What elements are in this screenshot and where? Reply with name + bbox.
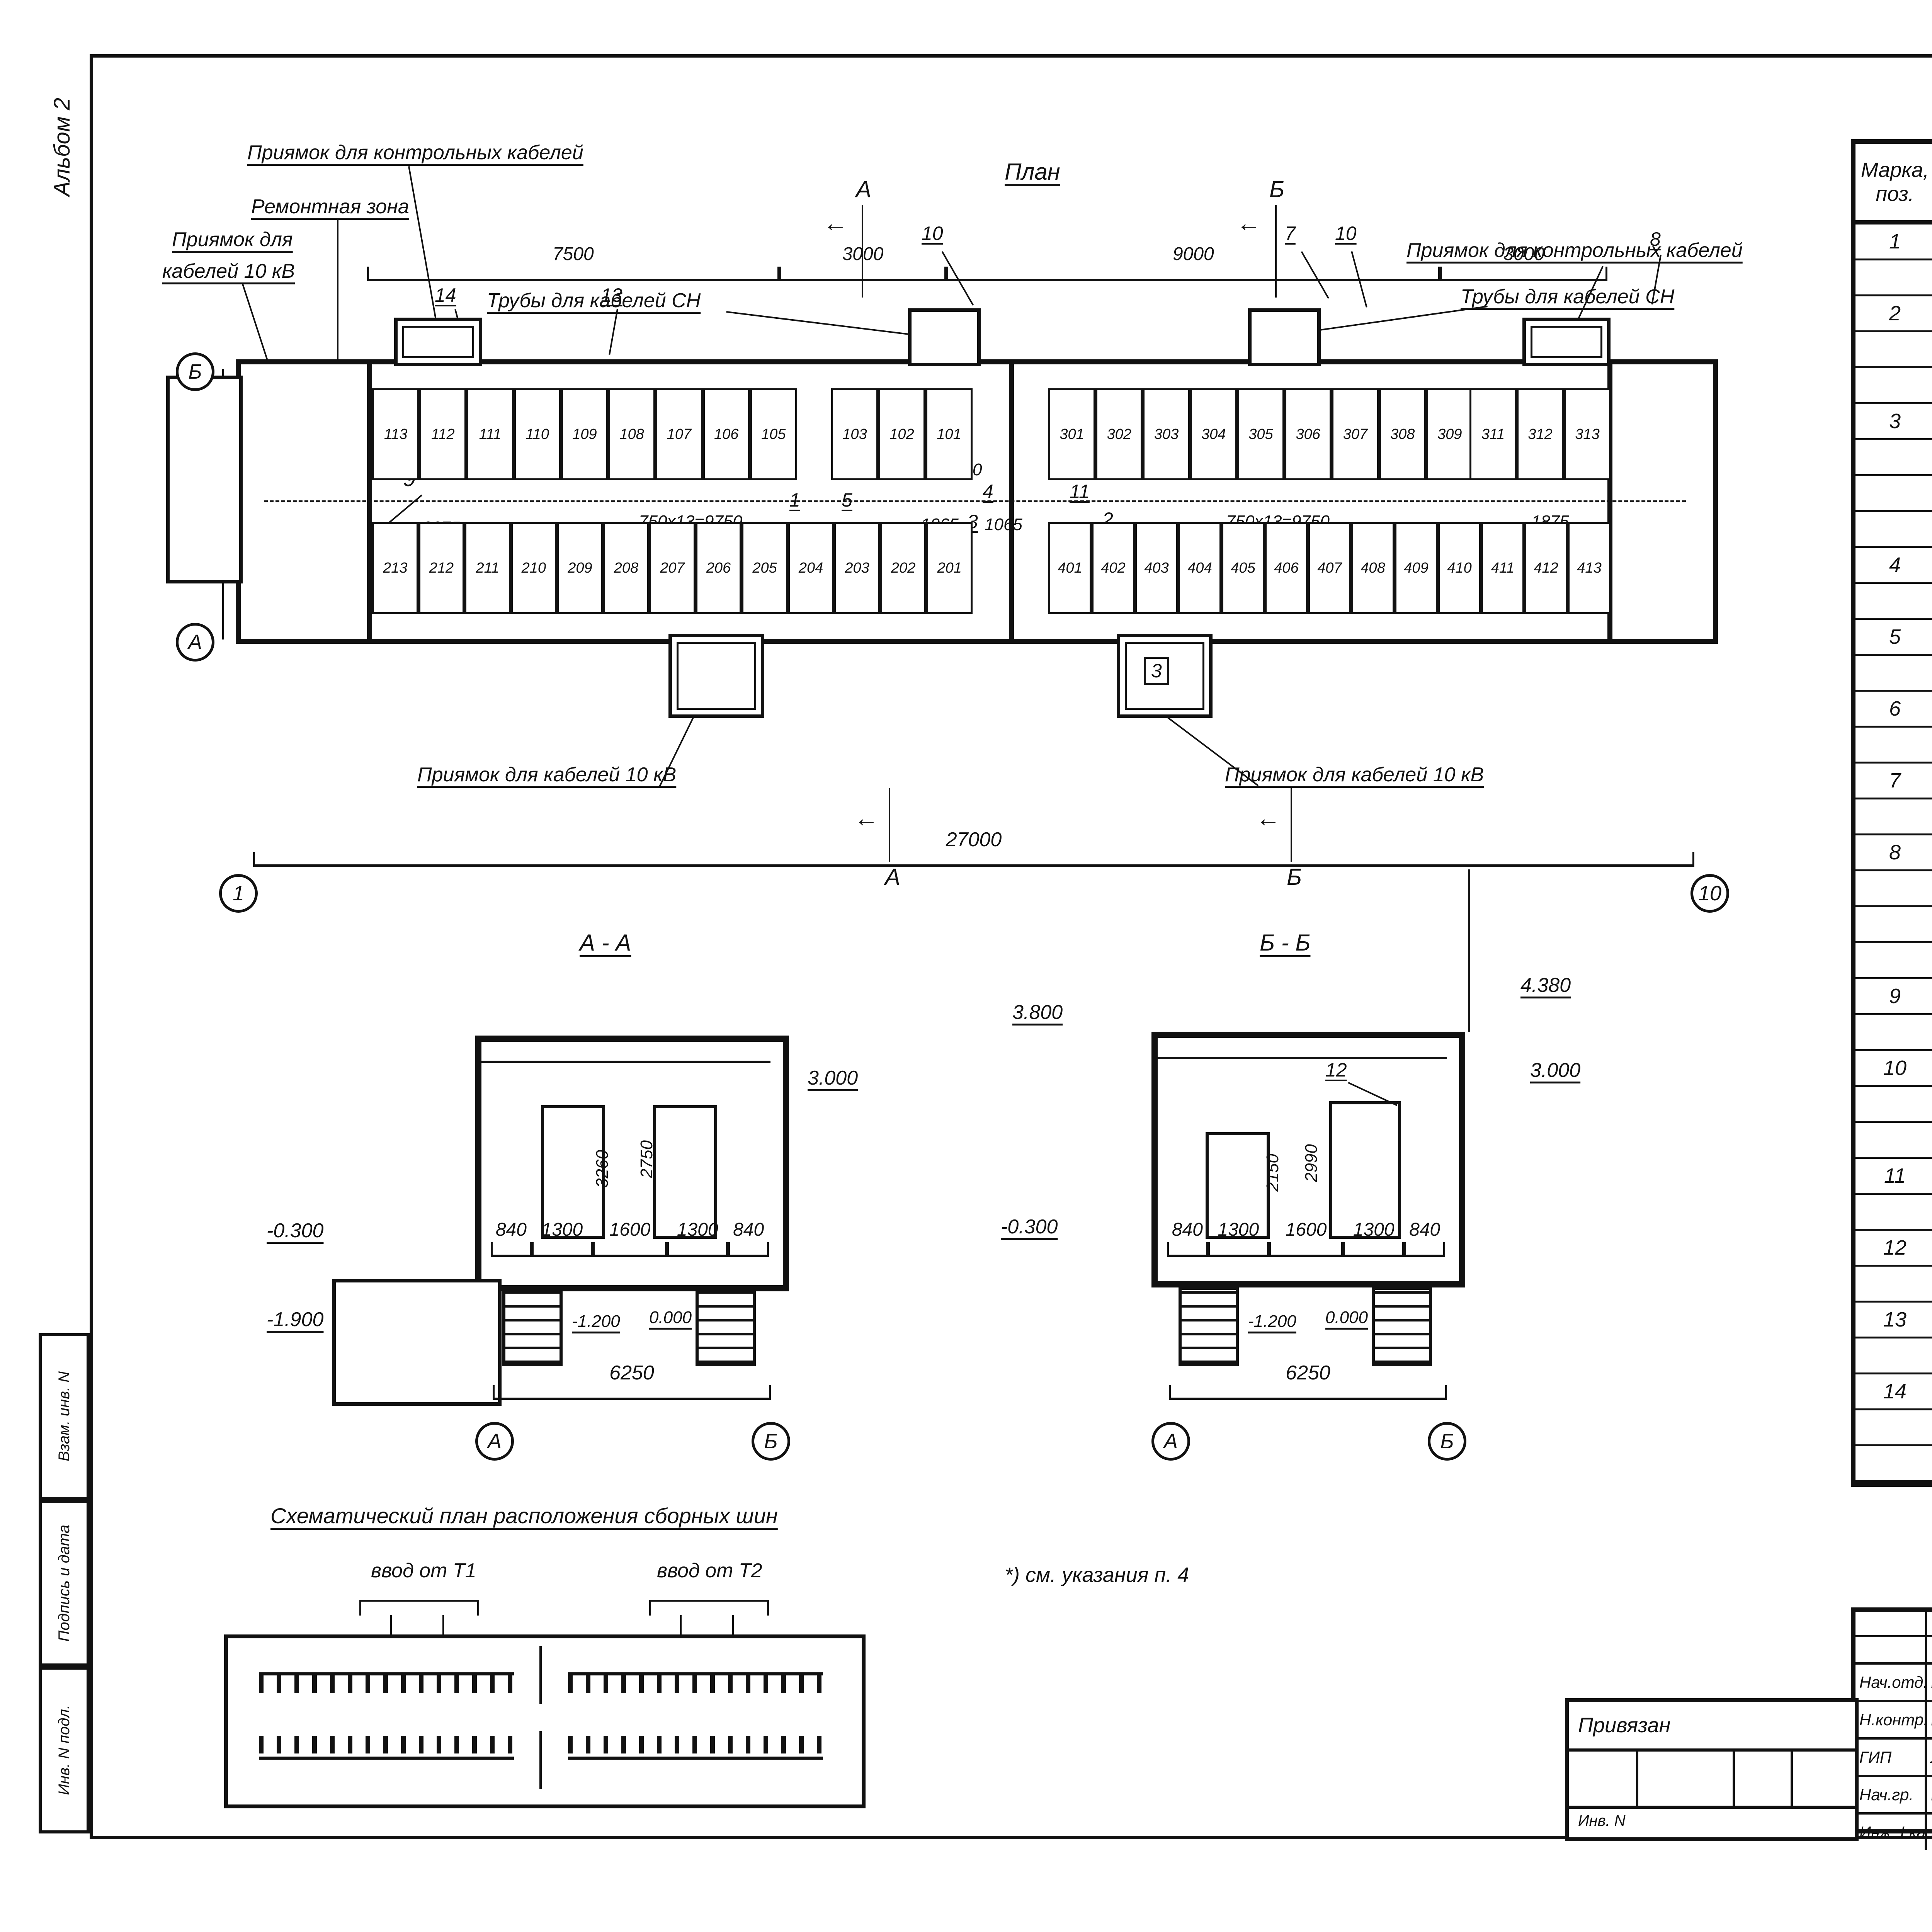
spec-cell-m: 11 bbox=[1855, 1159, 1932, 1195]
section-aa-level-0300: -0.300 bbox=[267, 1219, 323, 1242]
spec-row: связи с выключателем bbox=[1855, 332, 1932, 368]
pit-inner bbox=[402, 326, 474, 358]
section-aa-title: А - А bbox=[580, 929, 631, 956]
schematic-title: Схематический план расположения сборных … bbox=[270, 1503, 778, 1528]
busbar bbox=[259, 1672, 514, 1675]
spec-row: аппаратами8*302, 303, 402, 403 bbox=[1855, 584, 1932, 620]
dimension-label: 7500 bbox=[553, 243, 594, 265]
section-bb-title: Б - Б bbox=[1260, 929, 1310, 956]
spec-cell-m bbox=[1855, 476, 1932, 512]
grid-circle-10: 10 bbox=[1690, 874, 1729, 913]
dimension-segment: 1300 bbox=[667, 1242, 728, 1257]
callout-5: 5 bbox=[842, 489, 852, 511]
cabinet-cell: 307 bbox=[1332, 388, 1379, 480]
cell-row-top-right-a: 301302303304305306307308309 bbox=[1048, 388, 1473, 480]
busbar bbox=[568, 1672, 823, 1675]
cabinet-cell: 112 bbox=[419, 388, 466, 480]
cell-row-top-left-b: 103102101 bbox=[831, 388, 973, 480]
cabinet-cell: 101 bbox=[925, 388, 973, 480]
dimension-segment: 1600 bbox=[593, 1242, 667, 1257]
signature-cell: Карпов bbox=[1927, 1777, 1932, 1812]
cabinet-cell: 403 bbox=[1135, 522, 1178, 614]
album-label-text: Альбом 2 bbox=[49, 98, 75, 196]
label-pit-control-left: Приямок для контрольных кабелей bbox=[247, 141, 583, 164]
section-aa-grid-b: Б bbox=[752, 1422, 790, 1461]
dimension-segment: 3000 bbox=[779, 267, 947, 281]
pit-inner bbox=[677, 642, 756, 710]
dimension-segment: 1600 bbox=[1269, 1242, 1343, 1257]
spec-cell-m: 8 bbox=[1855, 835, 1932, 871]
margin-stamps: Взам. инв. NПодпись и датаИнв. N подл. bbox=[39, 1333, 90, 1833]
spec-cell-m bbox=[1855, 368, 1932, 404]
schematic-t1-label: ввод от Т1 bbox=[371, 1559, 476, 1582]
callout-8: 8 bbox=[1650, 228, 1661, 250]
signature-row: Инж. I катКарпова08.92 bbox=[1855, 1812, 1932, 1850]
section-split-line bbox=[539, 1731, 542, 1789]
plan-top-dims: 7500300090003000 bbox=[367, 267, 1607, 281]
plan-total-dim-label: 27000 bbox=[946, 828, 1002, 851]
cabinet-cell: 203 bbox=[834, 522, 880, 614]
spec-cell-m: 13 bbox=[1855, 1303, 1932, 1338]
spec-row: 3Шкаф КРУ-10 секционной bbox=[1855, 404, 1932, 440]
cabinet-cell: 313 bbox=[1564, 388, 1611, 480]
section-aa-level-0000: 0.000 bbox=[649, 1308, 692, 1327]
dimension-label: 1300 bbox=[677, 1219, 718, 1240]
spec-cell-m: 6 bbox=[1855, 692, 1932, 728]
grid-circle-b: Б bbox=[176, 352, 214, 391]
cabinet-cell: 205 bbox=[742, 522, 788, 614]
grid-circle-a: А bbox=[176, 623, 214, 662]
spec-cell-m bbox=[1855, 656, 1932, 692]
label-pipes-sn-left: Трубы для кабелей СН bbox=[487, 289, 701, 312]
spec-cell-m: 12 bbox=[1855, 1231, 1932, 1267]
section-aa-annex bbox=[332, 1279, 502, 1406]
signature-cell: ГИП bbox=[1855, 1740, 1927, 1775]
cabinet-cell: 202 bbox=[880, 522, 927, 614]
dimension-label: 840 bbox=[496, 1219, 527, 1240]
section-bb-level-0300: -0.300 bbox=[1001, 1215, 1058, 1238]
cabinet-cell: 213 bbox=[372, 522, 418, 614]
section-marker-line bbox=[1291, 788, 1292, 862]
spec-row: 5Шкаф КРУ-10 для питания bbox=[1855, 620, 1932, 656]
cabinet-cell: 402 bbox=[1092, 522, 1135, 614]
spec-body: 1Шкаф КРУ-10 ввода с вы-109, 204ключател… bbox=[1855, 224, 1932, 1482]
spec-row: 10ЭП2-10Доска проходная с bbox=[1855, 1051, 1932, 1087]
spec-title: Спецификация оборудования и материалов bbox=[1851, 86, 1932, 112]
spec-row: кабельных линий36* bbox=[1855, 728, 1932, 764]
cabinet-cell: 210 bbox=[511, 522, 557, 614]
dimension-label: 1300 bbox=[1218, 1219, 1259, 1240]
spec-row: 11ЭП2-11Шинный мост между bbox=[1855, 1159, 1932, 1195]
cabinet-cell: 102 bbox=[878, 388, 925, 480]
cell-row-top-left-a: 113112111110109108107106105 bbox=[372, 388, 797, 480]
section-marker-a-bottom: А bbox=[885, 864, 900, 890]
callout-7: 7 bbox=[1285, 222, 1296, 245]
privyazan-label: Привязан bbox=[1578, 1713, 1670, 1737]
signature-cell: Карпов bbox=[1927, 1702, 1932, 1737]
label-pit-control-right: Приямок для контрольных кабелей bbox=[1406, 239, 1743, 262]
cabinet-cell: 408 bbox=[1351, 522, 1395, 614]
section-bb-roof-line bbox=[1158, 1057, 1447, 1059]
spec-row: на ток 1600 А2201, 301 bbox=[1855, 368, 1932, 404]
section-arrow-b-bottom-icon: ← bbox=[1256, 804, 1281, 832]
cabinet-cell: 303 bbox=[1143, 388, 1190, 480]
dimension-segment: 840 bbox=[1404, 1242, 1445, 1257]
left-annex bbox=[166, 376, 243, 583]
spec-row: чательзоне bbox=[1855, 1410, 1932, 1446]
plan-title: План bbox=[1005, 158, 1060, 185]
spec-cell-m bbox=[1855, 512, 1932, 548]
cabinet-cell: 103 bbox=[831, 388, 878, 480]
spec-row: 7ШШВ 1Шкаф шинного ввода bbox=[1855, 764, 1932, 799]
cabinet-cell: 412 bbox=[1524, 522, 1568, 614]
cabinet-cell: 204 bbox=[788, 522, 834, 614]
spec-row: связи с разъединяющими bbox=[1855, 440, 1932, 476]
section-aa-roof-line bbox=[481, 1061, 770, 1063]
spec-table: Марка,поз.ОбозначениеНаименованиеКол.Мас… bbox=[1851, 139, 1932, 1487]
spec-row: изоляторами ИП □-□ bbox=[1855, 1087, 1932, 1123]
section-aa-dim-3260: 3260 bbox=[593, 1150, 612, 1188]
spec-cell-m bbox=[1855, 728, 1932, 764]
busbar-comb bbox=[568, 1675, 823, 1693]
busbar bbox=[568, 1757, 823, 1760]
cabinet-cell: 411 bbox=[1481, 522, 1524, 614]
cabinet-cell: 305 bbox=[1237, 388, 1284, 480]
spec-row: 2Шкаф КРУ-10 секционной bbox=[1855, 296, 1932, 332]
busbar-comb bbox=[259, 1736, 514, 1753]
callout-14: 14 bbox=[435, 284, 456, 306]
signature-cell: Карпова bbox=[1927, 1815, 1932, 1850]
schematic-t2-label: ввод от Т2 bbox=[657, 1559, 762, 1582]
section-bb-dim-2150: 2150 bbox=[1263, 1154, 1282, 1192]
spec-cell-m: 9 bbox=[1855, 979, 1932, 1015]
cabinet-cell: 304 bbox=[1190, 388, 1237, 480]
spec-row: трансформатра СН2107, 411 bbox=[1855, 656, 1932, 692]
spec-row: 12ЭП2-9Конструкция для крепле- bbox=[1855, 1231, 1932, 1267]
dim-1065b: 1065 bbox=[985, 515, 1022, 534]
cabinet-cell: 409 bbox=[1395, 522, 1438, 614]
spec-cell-m: 14 bbox=[1855, 1374, 1932, 1410]
section-marker-b-bottom: Б bbox=[1287, 864, 1302, 890]
dimension-label: 3000 bbox=[842, 243, 884, 265]
dimension-label: 1600 bbox=[1286, 1219, 1327, 1240]
spec-cell-m: 2 bbox=[1855, 296, 1932, 332]
cabinet-cell: 106 bbox=[703, 388, 750, 480]
section-marker-a-top: А bbox=[856, 176, 871, 202]
spec-row: 6Шкаф КРУ-10 отходящих bbox=[1855, 692, 1932, 728]
dimension-label: 840 bbox=[733, 1219, 764, 1240]
pit-inner bbox=[1531, 326, 1602, 358]
section-aa-width-dim: 6250 bbox=[493, 1385, 771, 1400]
callout-3-boxed: 3 bbox=[1144, 657, 1169, 685]
spec-cell-m bbox=[1855, 943, 1932, 979]
section-marker-line bbox=[1275, 205, 1277, 298]
cell-row-bottom-right: 401402403404405406407408409410411412413 bbox=[1048, 522, 1611, 614]
label-pit10-bottom-left: Приямок для кабелей 10 кВ bbox=[417, 763, 676, 786]
cabinet-cell: 207 bbox=[649, 522, 696, 614]
axis-dash-line bbox=[264, 500, 1686, 502]
spec-cell-m: 3 bbox=[1855, 404, 1932, 440]
section-bb-grid-b: Б bbox=[1428, 1422, 1466, 1461]
cabinet-cell: 108 bbox=[608, 388, 655, 480]
spec-row: ШШВ 37Шкаф шинного ввода bbox=[1855, 871, 1932, 907]
brace-t2 bbox=[649, 1600, 769, 1616]
section-arrow-b-icon: ← bbox=[1236, 209, 1261, 237]
label-repair-zone: Ремонтная зона bbox=[251, 195, 409, 218]
dimension-label: 1300 bbox=[541, 1219, 583, 1240]
cabinet-cell: 208 bbox=[603, 522, 650, 614]
title-block: Нач.отд.Раменский08.92Н.контр.Карпов08.9… bbox=[1851, 1607, 1932, 1833]
brace-t1 bbox=[359, 1600, 479, 1616]
signature-row: Нач.гр.Карпов08.92 bbox=[1855, 1775, 1932, 1812]
margin-stamp-label: Взам. инв. N bbox=[56, 1371, 73, 1461]
callout-10b: 10 bbox=[1335, 222, 1357, 245]
dimension-label: 9000 bbox=[1173, 243, 1214, 265]
section-bb-level-3800: 3.800 bbox=[1012, 1001, 1063, 1024]
spec-cell-m bbox=[1855, 1123, 1932, 1159]
spec-row: 1600 А2101, 401 bbox=[1855, 512, 1932, 548]
dimension-label: 840 bbox=[1409, 1219, 1440, 1240]
cabinet-cell: 413 bbox=[1568, 522, 1611, 614]
pit-top-right bbox=[1522, 318, 1611, 366]
cabinet-cell: 201 bbox=[926, 522, 973, 614]
spec-row: 1Шкаф КРУ-10 ввода с вы-109, 204 bbox=[1855, 224, 1932, 260]
cabinet-cell: 209 bbox=[557, 522, 603, 614]
busbar-comb bbox=[568, 1736, 823, 1753]
spec-cell-m: 4 bbox=[1855, 548, 1932, 584]
spec-cell-m bbox=[1855, 799, 1932, 835]
spec-cell-m: 10 bbox=[1855, 1051, 1932, 1087]
cabinet-cell: 308 bbox=[1379, 388, 1426, 480]
cell-row-bottom-left: 213212211210209208207206205204203202201 bbox=[372, 522, 973, 614]
cabinet-cell: 312 bbox=[1517, 388, 1564, 480]
album-label: Альбом 2 bbox=[39, 66, 85, 228]
cabinet-cell: 306 bbox=[1284, 388, 1332, 480]
spec-cell-m bbox=[1855, 1015, 1932, 1051]
label-pit10-bottom-right: Приямок для кабелей 10 кВ bbox=[1225, 763, 1484, 786]
callout-13: 13 bbox=[601, 284, 622, 306]
spec-row: 4Шкаф КРУ-10 с шинными102, 103, 202, 203… bbox=[1855, 548, 1932, 584]
section-bb-level-1200: -1.200 bbox=[1248, 1312, 1296, 1331]
section-aa-stair-pit bbox=[696, 1287, 756, 1366]
schematic-box bbox=[224, 1634, 866, 1808]
cell-row-top-right-b: 311312313 bbox=[1469, 388, 1611, 480]
spec-cell-m bbox=[1855, 332, 1932, 368]
spec-row: АП 5062 ТМ 3У3-6311.3 bbox=[1855, 1446, 1932, 1482]
section-aa-bottom-dims: 840130016001300840 bbox=[491, 1242, 769, 1257]
section-bb-level-4380: 4.380 bbox=[1520, 974, 1571, 997]
signature-row: Нач.отд.Раменский08.92 bbox=[1855, 1662, 1932, 1700]
spec-row: /□-□ УХЛ12 bbox=[1855, 1123, 1932, 1159]
callout-11: 11 bbox=[1070, 480, 1090, 503]
spec-row: ния ШШВ и ШШП6 bbox=[1855, 1267, 1932, 1303]
spec-cell-m bbox=[1855, 1338, 1932, 1374]
spec-row: контактами на ток bbox=[1855, 476, 1932, 512]
footnote: *) см. указания п. 4 bbox=[1005, 1563, 1189, 1587]
section-bb-stair-pit bbox=[1179, 1287, 1239, 1366]
cabinet-cell: 111 bbox=[466, 388, 514, 480]
dimension-label: 1600 bbox=[609, 1219, 651, 1240]
signature-row: ГИПЛурье08.92 bbox=[1855, 1737, 1932, 1775]
section-marker-line bbox=[889, 788, 890, 862]
titleblock-left: Нач.отд.Раменский08.92Н.контр.Карпов08.9… bbox=[1855, 1612, 1932, 1829]
cabinet-cell: 107 bbox=[655, 388, 702, 480]
dimension-segment: 1300 bbox=[532, 1242, 593, 1257]
spec-header-cell: Марка,поз. bbox=[1855, 144, 1932, 220]
dimension-label: 1300 bbox=[1353, 1219, 1395, 1240]
label-pipes-sn-right: Трубы для кабелей СН bbox=[1461, 285, 1674, 308]
spec-cell-m: 7 bbox=[1855, 764, 1932, 799]
cabinet-cell: 401 bbox=[1048, 522, 1092, 614]
spec-cell-m: 5 bbox=[1855, 620, 1932, 656]
section-arrow-a-bottom-icon: ← bbox=[854, 804, 879, 832]
sign-rows: Нач.отд.Раменский08.92Н.контр.Карпов08.9… bbox=[1855, 1662, 1932, 1850]
section-aa-stair-pit bbox=[502, 1287, 563, 1366]
busbar bbox=[259, 1757, 514, 1760]
spec-row: 10 кВ к ближнему ряду bbox=[1855, 799, 1932, 835]
spec-cell-m bbox=[1855, 584, 1932, 620]
margin-stamp-cell: Подпись и дата bbox=[39, 1500, 90, 1667]
cabinet-cell: 206 bbox=[696, 522, 742, 614]
busbar-comb bbox=[259, 1675, 514, 1693]
section-aa-dim-2750: 2750 bbox=[637, 1140, 656, 1178]
cabinet-cell: 407 bbox=[1308, 522, 1351, 614]
section-split-line bbox=[539, 1646, 542, 1704]
spec-cell-m bbox=[1855, 1087, 1932, 1123]
signature-cell: Инж. I кат bbox=[1855, 1815, 1927, 1850]
section-bb-dim-2990: 2990 bbox=[1302, 1144, 1321, 1182]
cabinet-cell: 406 bbox=[1265, 522, 1308, 614]
section-aa-level-1200: -1.200 bbox=[572, 1312, 620, 1331]
spec-row: секциями2 bbox=[1855, 1195, 1932, 1231]
privyazan-block: Привязан Инв. N bbox=[1565, 1698, 1859, 1841]
cabinet-cell: 302 bbox=[1095, 388, 1143, 480]
spec-cell-m bbox=[1855, 1446, 1932, 1482]
spec-row: релейный шкаф8* bbox=[1855, 1015, 1932, 1051]
pipe-box-right bbox=[1248, 308, 1321, 366]
section-aa-level-3000: 3.000 bbox=[808, 1066, 858, 1090]
building-outline: 113112111110109108107106105 103102101 30… bbox=[236, 359, 1718, 644]
section-bb-width-label: 6250 bbox=[1286, 1361, 1330, 1384]
cabinet-cell: 410 bbox=[1438, 522, 1481, 614]
spec-cell-m bbox=[1855, 907, 1932, 943]
cabinet-cell: 105 bbox=[750, 388, 797, 480]
spec-row: ЯЭ-8101-4070220.0монт- bbox=[1855, 1338, 1932, 1374]
dimension-segment: 1300 bbox=[1343, 1242, 1404, 1257]
dimension-label: 3000 bbox=[1503, 243, 1544, 265]
margin-stamp-cell: Инв. N подл. bbox=[39, 1667, 90, 1833]
signature-cell: Н.контр. bbox=[1855, 1702, 1927, 1737]
label-pit10-line2: кабелей 10 кВ bbox=[162, 260, 295, 283]
pit-top-left bbox=[394, 318, 482, 366]
signature-row: Н.контр.Карпов08.92 bbox=[1855, 1700, 1932, 1737]
cabinet-cell: 110 bbox=[514, 388, 561, 480]
signature-cell: Раменский bbox=[1927, 1665, 1932, 1700]
spec-row: на ток 1600 А2L=3700 bbox=[1855, 943, 1932, 979]
callout-4: 4 bbox=[983, 480, 993, 503]
label-pit10-line1: Приямок для bbox=[172, 228, 293, 251]
spec-cell-m: 1 bbox=[1855, 224, 1932, 260]
section-bb-mast bbox=[1468, 869, 1470, 1032]
spec-row: 13ТУ 34-43-11010-85Сварочный щитокв ре- bbox=[1855, 1303, 1932, 1338]
cabinet-cell: 211 bbox=[464, 522, 511, 614]
dimension-segment: 3000 bbox=[1440, 267, 1607, 281]
plan-total-dim: 27000 bbox=[253, 852, 1694, 867]
change-table bbox=[1855, 1612, 1932, 1662]
cabinet-cell: 113 bbox=[372, 388, 419, 480]
cabinet-cell: 309 bbox=[1426, 388, 1473, 480]
margin-stamp-label: Инв. N подл. bbox=[56, 1705, 73, 1795]
dimension-label: 840 bbox=[1172, 1219, 1203, 1240]
spec-row: ключателем на ток 1600 А2306, 410 bbox=[1855, 260, 1932, 296]
spec-row: 14ТУ 16-522.139-75Автоматический выклю-н… bbox=[1855, 1374, 1932, 1410]
cabinet-cell: 311 bbox=[1469, 388, 1517, 480]
section-arrow-a-icon: ← bbox=[823, 209, 848, 237]
cabinet-cell: 301 bbox=[1048, 388, 1095, 480]
spec-row: 9Отдельно стоящий bbox=[1855, 979, 1932, 1015]
spec-row: 8на ток 1600 А2L=800 bbox=[1855, 835, 1932, 871]
spec-cell-m bbox=[1855, 871, 1932, 907]
section-bb-level-3000: 3.000 bbox=[1530, 1059, 1580, 1082]
signature-cell: Лурье bbox=[1927, 1740, 1932, 1775]
signature-cell: Нач.гр. bbox=[1855, 1777, 1927, 1812]
section-bb-level-0000: 0.000 bbox=[1325, 1308, 1368, 1327]
spec-header: Марка,поз.ОбозначениеНаименованиеКол.Мас… bbox=[1855, 144, 1932, 224]
dimension-segment: 840 bbox=[728, 1242, 769, 1257]
cabinet-cell: 212 bbox=[418, 522, 465, 614]
dimension-segment: 840 bbox=[1167, 1242, 1208, 1257]
spec-row: 10 кВ к дальнему ряду bbox=[1855, 907, 1932, 943]
section-bb-bottom-dims: 840130016001300840 bbox=[1167, 1242, 1445, 1257]
drawing-sheet: 26 Альбом 2 Взам. инв. NПодпись и датаИн… bbox=[0, 0, 1932, 1932]
margin-stamp-cell: Взам. инв. N bbox=[39, 1333, 90, 1500]
cabinet-cell: 109 bbox=[561, 388, 608, 480]
callout-1: 1 bbox=[789, 489, 800, 511]
spec-cell-m bbox=[1855, 1267, 1932, 1303]
spec-cell-m bbox=[1855, 1195, 1932, 1231]
dimension-segment: 1300 bbox=[1208, 1242, 1269, 1257]
callout-10a: 10 bbox=[922, 222, 943, 245]
section-bb-callout-12: 12 bbox=[1325, 1059, 1347, 1081]
spec-cell-m bbox=[1855, 440, 1932, 476]
section-bb-cabinet bbox=[1329, 1101, 1401, 1239]
section-aa-level-1900: -1.900 bbox=[267, 1308, 323, 1331]
margin-stamp-label: Подпись и дата bbox=[56, 1525, 73, 1642]
spec-cell-m bbox=[1855, 260, 1932, 296]
section-bb-stair-pit bbox=[1372, 1287, 1432, 1366]
dimension-segment: 840 bbox=[491, 1242, 532, 1257]
pit-bottom-left bbox=[668, 634, 764, 718]
section-aa-width-label: 6250 bbox=[609, 1361, 654, 1384]
section-marker-b-top: Б bbox=[1269, 176, 1284, 202]
dimension-segment: 7500 bbox=[367, 267, 779, 281]
cabinet-cell: 405 bbox=[1221, 522, 1265, 614]
privyazan-grid bbox=[1569, 1752, 1855, 1809]
grid-circle-1: 1 bbox=[219, 874, 258, 913]
cabinet-cell: 404 bbox=[1178, 522, 1221, 614]
section-bb-width-dim: 6250 bbox=[1169, 1385, 1447, 1400]
pipe-box-left bbox=[908, 308, 981, 366]
privyazan-inv-label: Инв. N bbox=[1578, 1812, 1626, 1830]
dimension-segment: 9000 bbox=[946, 267, 1440, 281]
section-bb-grid-a: А bbox=[1151, 1422, 1190, 1461]
signature-cell: Нач.отд. bbox=[1855, 1665, 1927, 1700]
spec-cell-m bbox=[1855, 1410, 1932, 1446]
section-aa-grid-a: А bbox=[475, 1422, 514, 1461]
